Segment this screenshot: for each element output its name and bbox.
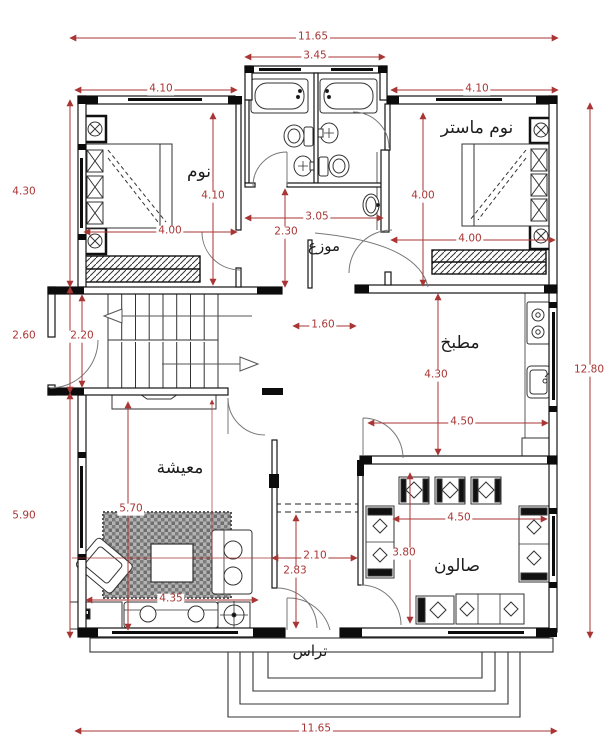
bath-right-door-arc xyxy=(353,112,389,148)
dim-left-upper: 4.30 xyxy=(10,187,37,199)
dim-corridor-top: 1.60 xyxy=(309,320,336,332)
sink-right-bath xyxy=(318,123,338,143)
dim-left-lower: 5.90 xyxy=(10,511,37,523)
dim-corridor-length: 2.83 xyxy=(281,566,308,578)
stairs xyxy=(104,294,258,388)
dim-top-total: 11.65 xyxy=(296,32,330,44)
salon-sofa-right xyxy=(519,506,549,582)
master-wardrobe xyxy=(432,250,546,274)
dim-top-left: 4.10 xyxy=(147,84,174,96)
dim-top-right: 4.10 xyxy=(463,84,490,96)
kitchen-door-arc xyxy=(363,418,403,458)
room-label-kitchen: مطبخ xyxy=(440,333,479,353)
dim-living-width: 4.35 xyxy=(157,594,184,606)
living-sofa-bottom xyxy=(124,602,218,628)
room-label-master-bedroom: نوم ماستر xyxy=(441,118,513,138)
stair-entry-door-arc xyxy=(50,340,98,388)
dim-hall-width: 3.05 xyxy=(303,212,330,224)
dim-corridor-width: 2.10 xyxy=(301,551,328,563)
salon-chairs-top xyxy=(399,477,501,504)
salon-sofa-left xyxy=(366,506,394,578)
dim-salon-depth: 3.80 xyxy=(390,548,417,560)
coffee-table xyxy=(151,544,193,582)
bathtub-right xyxy=(320,79,377,113)
dim-bedroom-height: 4.10 xyxy=(199,191,226,203)
room-label-hall: موزع xyxy=(308,237,340,255)
floor-plan-drawing xyxy=(0,0,615,741)
bathtub-left xyxy=(251,79,308,113)
floor-plan: نوم نوم ماستر موزع مطبخ معيشة صالون تراس… xyxy=(0,0,615,741)
terrace-door-arc xyxy=(287,598,330,630)
dim-master-height: 4.00 xyxy=(409,191,436,203)
toilet-right xyxy=(319,155,349,177)
master-door-arc xyxy=(349,230,392,273)
dim-kitchen-width: 4.50 xyxy=(448,417,475,429)
sink-left-bath xyxy=(294,156,315,176)
dim-kitchen-height: 4.30 xyxy=(422,370,449,382)
dim-master-width: 4.00 xyxy=(456,234,483,246)
room-label-salon: صالون xyxy=(434,556,480,576)
dim-stair-depth: 2.20 xyxy=(68,331,95,343)
room-label-bedroom: نوم xyxy=(187,162,211,182)
living-sofa-right xyxy=(212,530,252,594)
dim-bedroom-width: 4.00 xyxy=(156,226,183,238)
dim-salon-width: 4.50 xyxy=(445,513,472,525)
side-table-right xyxy=(218,601,250,629)
salon-sofa-bottom-small xyxy=(416,596,454,624)
corridor-door-arc xyxy=(277,588,317,628)
room-label-living: معيشة xyxy=(157,458,204,478)
room-label-terrace: تراس xyxy=(293,642,328,660)
bedroom-door-arc xyxy=(202,232,240,270)
dim-left-mid: 2.60 xyxy=(10,331,37,343)
corridor-dashed-lines xyxy=(275,504,360,512)
toilet-left xyxy=(284,125,313,147)
salon-sofa-bottom xyxy=(456,594,524,624)
bedroom-wardrobe xyxy=(84,256,200,282)
dim-living-height: 5.70 xyxy=(117,504,144,516)
salon-door-arc xyxy=(361,585,401,625)
dim-right-total: 12.80 xyxy=(572,365,606,377)
dim-bottom-total: 11.65 xyxy=(299,724,333,736)
bath-left-door-arc xyxy=(253,152,287,186)
dim-hall-depth: 2.30 xyxy=(272,227,299,239)
dim-top-bath: 3.45 xyxy=(301,51,328,63)
living-door-arc xyxy=(228,398,265,435)
